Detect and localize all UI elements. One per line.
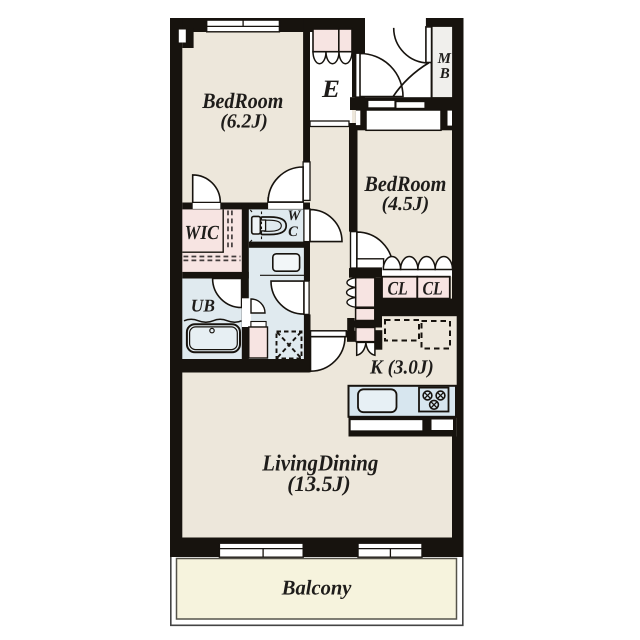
- svg-text:CL: CL: [422, 278, 442, 299]
- svg-text:Balcony: Balcony: [281, 576, 352, 600]
- svg-text:(4.5J): (4.5J): [382, 193, 430, 215]
- svg-text:C: C: [288, 224, 298, 240]
- svg-text:CL: CL: [387, 278, 407, 299]
- svg-text:M: M: [437, 51, 452, 67]
- svg-text:W: W: [288, 208, 302, 224]
- svg-text:B: B: [439, 66, 450, 82]
- svg-text:E: E: [321, 76, 340, 103]
- svg-text:K (3.0J): K (3.0J): [369, 357, 434, 379]
- svg-text:(13.5J): (13.5J): [287, 471, 350, 496]
- svg-text:(6.2J): (6.2J): [220, 111, 268, 133]
- svg-text:BedRoom: BedRoom: [201, 88, 283, 113]
- svg-text:UB: UB: [191, 296, 215, 316]
- svg-text:WIC: WIC: [185, 222, 220, 244]
